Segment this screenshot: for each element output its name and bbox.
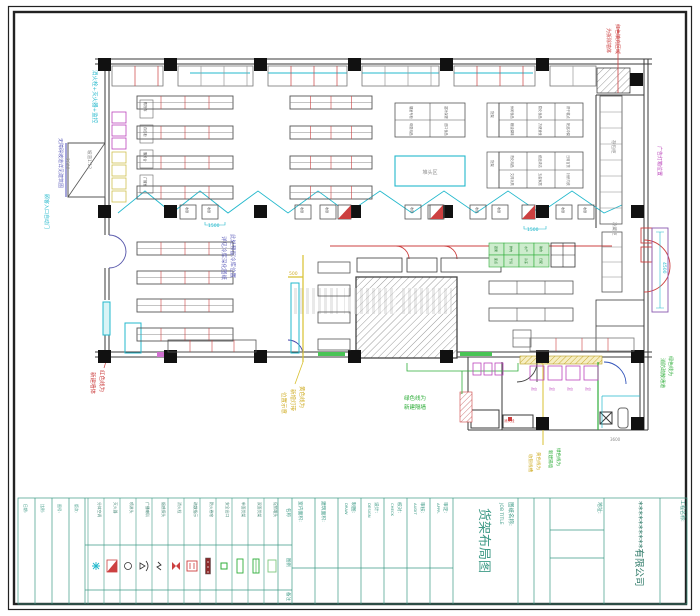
note-entrance: 顾客入口自动门 xyxy=(43,194,50,229)
service-box-label: 存包柜 xyxy=(143,127,148,137)
dept-cell-label: 方便速食 xyxy=(538,123,543,137)
note-exit-green-1: 绿色线为 xyxy=(667,356,674,376)
note-green-b2: 新建隔墙 xyxy=(547,450,554,468)
rack-label-cell xyxy=(487,103,499,137)
column xyxy=(164,58,177,71)
entrance-ramp xyxy=(66,143,105,197)
hatched-demolish-wall xyxy=(597,68,630,93)
note-demolish-2: 为拆除墙体 xyxy=(605,28,612,53)
label-promo: 堆头区 xyxy=(422,169,437,176)
fresh-cell-label: 蔬果 xyxy=(494,246,499,252)
dim-shelf: 500 xyxy=(289,271,298,277)
dept-cell-label: 滋补保健 xyxy=(444,106,449,120)
column xyxy=(98,58,111,71)
column xyxy=(440,350,453,363)
fresh-cell-label: 日配 xyxy=(539,258,544,264)
wall-box xyxy=(112,191,126,202)
dept-cell-label: 五金家居 xyxy=(538,173,543,186)
company-name: **********有限公司 xyxy=(633,501,645,587)
checkout-label: 收银 xyxy=(583,207,588,213)
rack-label-cell xyxy=(487,152,499,188)
note-red-wall-2: 新建墙体 xyxy=(89,372,97,395)
checkout-label: 收银 xyxy=(207,207,212,213)
title-block-texts: 图纸名称: JOB TITLE 货架布局图 地址: **********有限公司… xyxy=(285,500,686,601)
column xyxy=(348,58,361,71)
note-coldroom-2: 详见冷库深化图纸 xyxy=(220,236,228,281)
address-label: 地址: xyxy=(596,502,603,514)
dept-cell-label: 粮油调味 xyxy=(510,123,515,137)
column xyxy=(631,350,644,363)
checkout-label: 收银 xyxy=(475,207,480,213)
legend-smoke-icon xyxy=(157,562,161,570)
titleblock-left-field: 图号: xyxy=(57,504,62,513)
column xyxy=(440,58,453,71)
legend-item-name: 分体空调 xyxy=(97,502,102,517)
column xyxy=(631,205,644,218)
sign-field-cn: 审定: xyxy=(442,502,449,514)
checkout-label: 收银 xyxy=(410,207,415,213)
column xyxy=(98,350,111,363)
wall-box xyxy=(112,152,126,163)
note-green-wall-2: 新建隔墙 xyxy=(404,403,427,411)
dim-aisle-2: 1500 xyxy=(527,227,539,233)
legend-header-note: 备注 xyxy=(285,592,292,601)
service-counter-band xyxy=(520,356,602,364)
checkout-label: 收银 xyxy=(300,207,305,213)
note-barrier-free: 无障碍坡道详见建筑图 xyxy=(57,138,64,188)
annex-counter-tag: 款台 xyxy=(567,386,573,391)
wall-box xyxy=(112,178,126,189)
column xyxy=(254,58,267,71)
wall-shelf xyxy=(112,66,163,86)
legend-item-name: 促销堆头 xyxy=(273,502,278,517)
titleblock-left-field: 比例: xyxy=(40,504,45,513)
checkout-label: 收银 xyxy=(325,207,330,213)
fresh-cell-label: 冷冻 xyxy=(524,258,529,264)
legend-item-name: 灭火器 xyxy=(113,502,118,514)
sign-field-en: DRAW xyxy=(344,503,349,515)
wall-box xyxy=(112,125,126,136)
legend-exit-icon xyxy=(187,561,197,571)
wall-shelf xyxy=(362,66,439,86)
note-yellow-b2: 收银线槽 xyxy=(527,454,534,472)
legend-item-name: 单面货架 xyxy=(241,502,246,517)
wall-shelf xyxy=(178,66,253,86)
note-lightbox: 广告灯箱位置 xyxy=(656,146,663,176)
note-hydrant: 消火栓+灭火器+监控 xyxy=(91,70,99,124)
column xyxy=(631,417,644,430)
dept-cell-label: 休闲食品 xyxy=(510,106,515,119)
label-locker: 存包柜 xyxy=(610,140,617,154)
note-coldroom-1: 此处预留冷库位置 xyxy=(229,234,237,279)
job-title-label-en: JOB TITLE xyxy=(498,502,504,525)
dept-cell-label: 日用百货 xyxy=(566,155,571,168)
dim-platform: 4500 xyxy=(661,262,667,274)
dept-cell-label: 烟酒专柜 xyxy=(409,106,414,120)
label-freezer: 冷藏柜 xyxy=(611,222,618,236)
service-box-label: 广播室 xyxy=(143,177,148,187)
wall-shelf xyxy=(268,66,347,86)
service-box-label: 服务台 xyxy=(143,152,148,162)
sign-field-en: DESIGN xyxy=(367,503,372,518)
note-green-wall-1: 绿色线为 xyxy=(404,394,426,402)
note-green-b1: 绿色线为 xyxy=(555,448,562,466)
fresh-cell-label: 面点 xyxy=(494,258,499,264)
note-yellow-3: 位置示意 xyxy=(280,392,288,415)
fresh-cell-label: 水产 xyxy=(524,246,529,252)
note-yellow-1: 黄色线为 xyxy=(298,386,306,408)
titleblock-left-field: 日期: xyxy=(23,504,28,513)
wall-box xyxy=(112,165,126,176)
column xyxy=(536,417,549,430)
legend-hydrant-icon xyxy=(172,562,180,570)
area-field-label: 建筑面积: xyxy=(320,501,327,522)
annex-counter-tag: 款台 xyxy=(585,386,591,391)
checkout-label: 收银 xyxy=(185,207,190,213)
rack-label: 货架 xyxy=(490,111,495,118)
job-title-label-cn: 图纸名称: xyxy=(507,502,515,526)
checkout-label: 收银 xyxy=(561,207,566,213)
dept-cell-label: 洗化用品 xyxy=(510,155,515,168)
drawing-title: 货架布局图 xyxy=(476,508,492,573)
wall-box xyxy=(112,112,126,123)
sign-field-en: CHECK xyxy=(390,503,395,517)
dept-cell-label: 纸品清洁 xyxy=(538,155,543,168)
wall-box xyxy=(112,138,126,149)
dim-annex: 3600 xyxy=(610,437,621,442)
side-shelf xyxy=(318,262,350,273)
column xyxy=(348,350,361,363)
side-shelf xyxy=(318,339,350,350)
dept-cell-label: 膨化食品 xyxy=(538,106,543,119)
dept-cell-label: 母婴用品 xyxy=(409,123,414,136)
dept-table-grid xyxy=(395,103,465,137)
dim-ramp: 2600 xyxy=(64,158,70,170)
legend-sprinkler-icon xyxy=(125,563,132,570)
legend-header-name: 名称 xyxy=(285,508,292,517)
dept-cell-label: 进口食品 xyxy=(444,123,449,136)
drawing-sheet: 图纸名称: JOB TITLE 货架布局图 地址: **********有限公司… xyxy=(0,0,700,616)
legend-safety-icon xyxy=(221,563,227,569)
note-yellow-b1: 黄色线为 xyxy=(535,452,542,470)
title-block xyxy=(18,498,687,604)
note-ramp-slope: 坡道1:12 xyxy=(86,150,93,169)
legend-item-name: 安全出口 xyxy=(225,502,230,517)
legend-item-name: 双面货架 xyxy=(257,502,262,517)
dept-cell-label: 针织内衣 xyxy=(566,173,571,187)
note-yellow-2: 新增灯带 xyxy=(289,389,297,412)
legend-header-symbol: 图例 xyxy=(285,558,292,567)
legend-exit-marks xyxy=(190,563,194,569)
service-box-label: 购物车 xyxy=(143,102,148,112)
legend-item-name: 烟感探头 xyxy=(161,502,166,517)
sign-field-cn: 设计: xyxy=(373,502,380,514)
sign-field-en: AUDIT xyxy=(413,503,418,515)
note-red-wall-1: 红色线为 xyxy=(98,370,106,392)
column xyxy=(630,73,643,86)
watermark xyxy=(292,288,452,314)
checkout-label: 收银 xyxy=(497,207,502,213)
project-name-label: 工程名称: xyxy=(679,500,686,522)
gondola-shelf xyxy=(489,281,573,294)
legend-item-name: 消火栓 xyxy=(177,502,182,514)
legend-speaker-icon xyxy=(140,561,148,571)
label-hydrant-annex: 消火栓 xyxy=(504,418,515,423)
area-field-label: 室内面积: xyxy=(297,501,304,522)
dept-cell-label: 饼干糕点 xyxy=(566,106,571,120)
annex-counter-tag: 款台 xyxy=(549,386,555,391)
fresh-cell-label: 熟食 xyxy=(539,246,544,252)
fresh-cell-label: 鲜肉 xyxy=(509,246,514,252)
legend-item-name: 广播喇叭 xyxy=(145,502,150,517)
legend-promo-icon xyxy=(268,560,276,572)
dim-aisle-1: 1500 xyxy=(208,223,220,229)
annex-counter-tag: 款台 xyxy=(531,386,537,391)
gondola-shelf xyxy=(489,308,573,321)
fresh-cell-label: 干货 xyxy=(509,258,514,264)
column xyxy=(536,58,549,71)
legend-item-name: 喷淋头 xyxy=(129,502,134,514)
note-demolish-1: 红色填充区域 xyxy=(614,24,621,54)
note-exit-green-2: 消防疏散通道 xyxy=(659,358,666,388)
column xyxy=(536,350,549,363)
sign-field-cn: 校对: xyxy=(396,502,403,514)
dept-cell-label: 奶品冲调 xyxy=(566,123,571,136)
sign-field-cn: 制图: xyxy=(350,502,357,514)
sign-field-en: APPR. xyxy=(436,503,441,514)
sign-field-cn: 审核: xyxy=(419,502,426,514)
column xyxy=(98,205,111,218)
legend-ac-icon xyxy=(92,562,100,570)
rack-label: 货架 xyxy=(490,160,495,167)
column xyxy=(164,205,177,218)
legend-shelf1-icon xyxy=(237,559,243,573)
annex-fixtures xyxy=(473,363,598,380)
legend-item-name: 疏散指示 xyxy=(193,502,198,517)
titleblock-left-field: 版次: xyxy=(74,504,79,513)
column xyxy=(536,205,549,218)
column xyxy=(254,205,267,218)
dept-cell-label: 文具玩具 xyxy=(510,173,515,187)
hatched-annex-pier xyxy=(460,392,472,422)
fresh-table-grid xyxy=(551,243,575,267)
legend-item-name: 防火卷帘 xyxy=(209,502,214,517)
floor-plan-canvas: 图纸名称: JOB TITLE 货架布局图 地址: **********有限公司… xyxy=(0,0,700,616)
small-cabinet xyxy=(513,330,531,347)
